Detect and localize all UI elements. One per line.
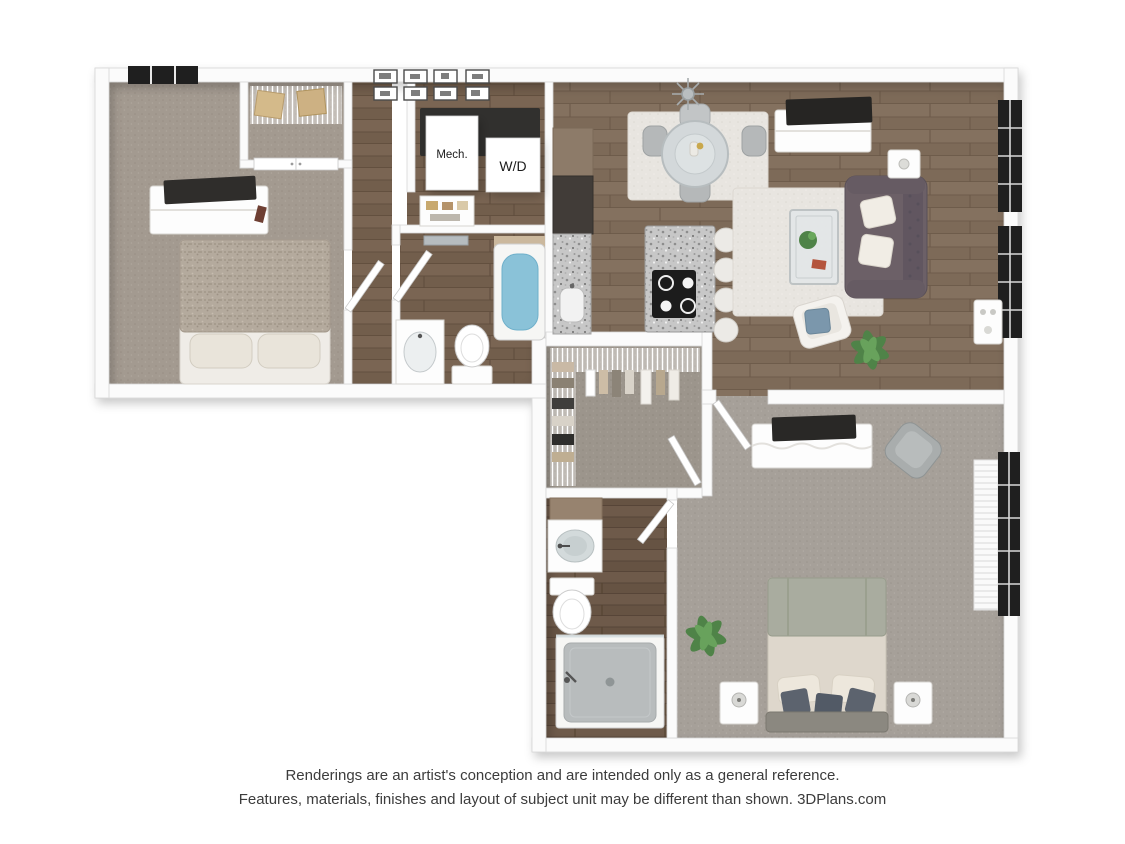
master-nightstand-left [720, 682, 758, 724]
master-headboard [766, 712, 888, 732]
floor-plan-rendering: Mech. W/D [0, 0, 1125, 770]
nook-shelf-unit [420, 196, 474, 226]
floor-plan-page: Mech. W/D [0, 0, 1125, 844]
disclaimer: Renderings are an artist's conception an… [0, 764, 1125, 812]
master-bed [766, 578, 888, 732]
wall-bathroom2-east-stub [667, 488, 677, 500]
master-bed-duvet [768, 578, 886, 636]
bedroom1-dresser [150, 176, 268, 234]
bathroom1-tub [494, 236, 545, 340]
mech-label: Mech. [436, 149, 467, 161]
refrigerator [553, 176, 593, 234]
wd-label: W/D [499, 158, 526, 174]
tub-water [502, 254, 538, 330]
coffee-table [790, 210, 838, 284]
wall-bedroom1-closet-west [240, 82, 248, 168]
bar-stool [714, 318, 738, 342]
wall-west-exterior [95, 68, 109, 398]
cooktop [652, 270, 696, 318]
dining-chair [742, 126, 766, 156]
wall-west-lower-exterior [532, 338, 546, 752]
bed1-pillow [190, 334, 252, 368]
bed1-blanket [180, 240, 330, 332]
wall-master-north [768, 390, 1004, 404]
sofa-pillow [859, 195, 896, 229]
tv-master [772, 415, 857, 442]
accent-chair-pillow [804, 308, 830, 334]
kitchen-sink [560, 284, 584, 322]
kitchen-island [645, 226, 715, 332]
sofa [845, 176, 927, 298]
disclaimer-line-2: Features, materials, finishes and layout… [0, 788, 1125, 812]
storage-box [254, 90, 284, 119]
wall-north-exterior [95, 68, 1018, 82]
bed-bedroom1 [180, 240, 330, 384]
hallway-floor [352, 82, 392, 384]
bathroom1-mirror [424, 236, 468, 245]
master-window-blinds [974, 460, 998, 610]
disclaimer-line-1: Renderings are an artist's conception an… [0, 764, 1125, 788]
tv-living [786, 97, 873, 126]
tv-console [775, 97, 872, 152]
bed1-pillow [258, 334, 320, 368]
bedroom1-closet-doors [254, 158, 338, 170]
wall-south-exterior [532, 738, 1018, 752]
wall-south-bedroom-wing [95, 384, 546, 398]
kitchen-cabinets [553, 128, 593, 176]
storage-box [297, 89, 326, 117]
sofa-pillow [858, 234, 894, 269]
master-window [974, 452, 1020, 616]
wall-living-west [545, 82, 553, 338]
bathroom2-toilet [550, 578, 594, 634]
wall-bedroom1-east-lower [344, 310, 352, 384]
wall-master-north-stub [702, 390, 716, 404]
tv-bedroom1 [163, 176, 256, 205]
wall-bathroom2-east [667, 548, 677, 738]
master-nightstand-right [894, 682, 932, 724]
bathroom2-upper-cabinet [550, 498, 602, 520]
bedroom1-window [128, 66, 198, 84]
wall-closet-south [546, 488, 702, 498]
wall-bathroom1-west-upper [392, 225, 400, 245]
side-table [888, 150, 920, 178]
bathroom2-shower [556, 636, 664, 728]
bar-cart [974, 300, 1002, 344]
bathroom1-vanity [396, 320, 444, 384]
wall-closet-east [702, 332, 712, 496]
living-window-1 [998, 100, 1022, 212]
bathroom2-vanity [548, 520, 602, 572]
dining-table [662, 121, 728, 187]
bathroom1-toilet [452, 325, 492, 384]
closet-shelving-north [576, 348, 700, 372]
